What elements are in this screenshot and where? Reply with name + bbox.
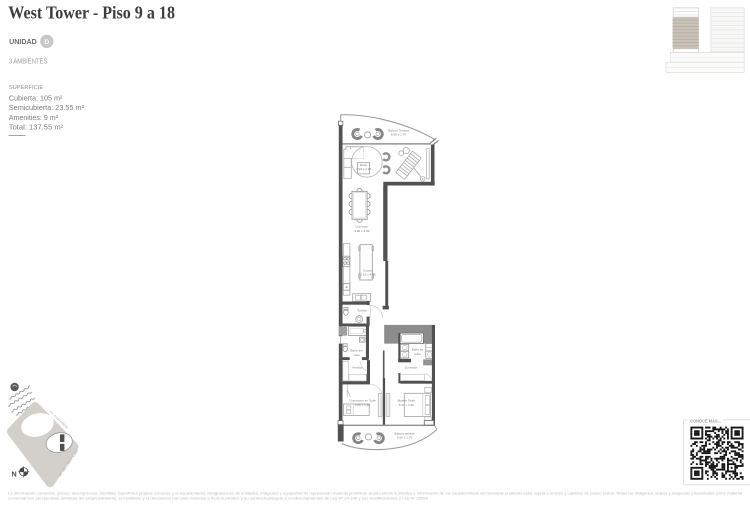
svg-text:Cubierta: 105 m²: Cubierta: 105 m² [9, 93, 63, 102]
svg-text:4.90 x 3.00: 4.90 x 3.00 [354, 229, 370, 233]
svg-text:Toilette: Toilette [357, 309, 367, 313]
svg-text:La información comercial, plan: La información comercial, planos, descri… [8, 492, 742, 496]
svg-text:6.60 x 1.70: 6.60 x 1.70 [397, 436, 413, 440]
svg-text:3.10 x 4.05: 3.10 x 4.05 [360, 273, 376, 277]
svg-text:6.60 x 1.70: 6.60 x 1.70 [391, 133, 407, 137]
svg-text:West Tower - Piso 9 a 18: West Tower - Piso 9 a 18 [8, 2, 175, 22]
svg-text:SUPERFICIE: SUPERFICIE [9, 85, 43, 91]
svg-text:Dormitorio en Suite: Dormitorio en Suite [350, 398, 377, 402]
svg-text:UNIDAD: UNIDAD [9, 37, 37, 46]
svg-text:Master Suite: Master Suite [398, 398, 416, 402]
svg-text:comercial son perspectivas art: comercial son perspectivas artísticas de… [8, 496, 428, 500]
svg-text:4.90 x 2.90: 4.90 x 2.90 [356, 167, 372, 171]
svg-text:N: N [12, 470, 17, 479]
svg-text:Amenities: 9 m²: Amenities: 9 m² [9, 113, 59, 122]
svg-text:Total: 137.55 m²: Total: 137.55 m² [9, 123, 64, 132]
svg-text:D: D [44, 39, 49, 46]
svg-text:3 AMBIENTES: 3 AMBIENTES [9, 57, 48, 66]
svg-text:3.63 x 3.30: 3.63 x 3.30 [399, 403, 415, 407]
svg-text:Semicubierta: 23.55 m²: Semicubierta: 23.55 m² [9, 103, 85, 112]
svg-text:CONOCÉ MÁS...: CONOCÉ MÁS... [690, 418, 721, 423]
svg-text:Corredor: Corredor [405, 366, 417, 370]
svg-text:3.08 x 3.30: 3.08 x 3.30 [355, 403, 371, 407]
svg-text:suite: suite [353, 353, 360, 357]
svg-text:suite: suite [414, 352, 421, 356]
